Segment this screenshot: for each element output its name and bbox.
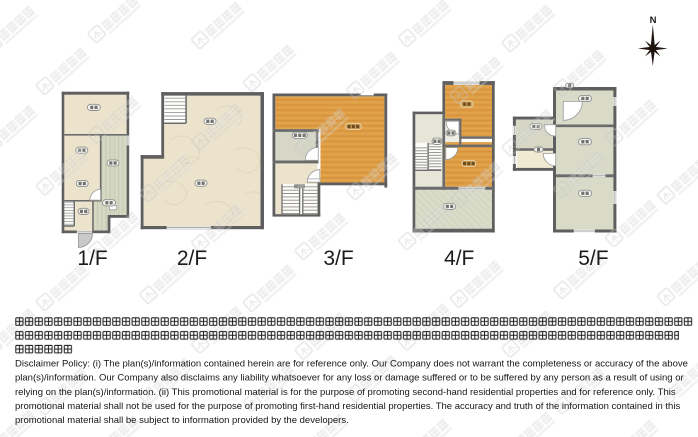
svg-text:2/F: 2/F: [177, 247, 207, 270]
svg-text:promotional material shall be: promotional material shall be subject to…: [15, 415, 349, 426]
svg-text:N: N: [650, 15, 657, 26]
svg-text:plan(s)/information. Our Compa: plan(s)/information. Our Company also di…: [15, 373, 684, 384]
svg-text:4/F: 4/F: [444, 247, 474, 270]
svg-text:3/F: 3/F: [323, 247, 353, 270]
svg-text:promotional material shall not: promotional material shall not be used f…: [15, 401, 680, 412]
svg-text:5/F: 5/F: [578, 247, 608, 270]
svg-text:1/F: 1/F: [77, 247, 107, 270]
svg-text:Disclaimer Policy: (i) The pla: Disclaimer Policy: (i) The plan(s)/infor…: [15, 359, 688, 370]
svg-text:relying on the plan(s)/informa: relying on the plan(s)/information. (ii)…: [15, 387, 676, 398]
